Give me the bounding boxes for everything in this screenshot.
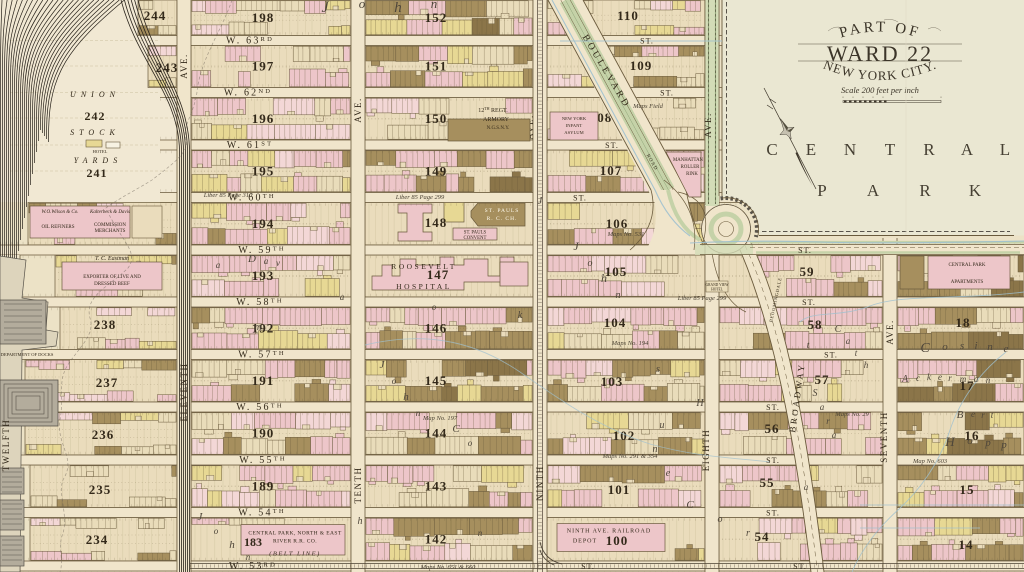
svg-text:AVE.: AVE. bbox=[179, 53, 189, 79]
svg-text:ST.: ST. bbox=[766, 509, 780, 518]
svg-text:Map No. 603: Map No. 603 bbox=[912, 458, 948, 465]
svg-text:o: o bbox=[214, 526, 219, 536]
svg-text:o: o bbox=[392, 376, 397, 386]
svg-text:CENTRAL PARK: CENTRAL PARK bbox=[949, 263, 986, 268]
svg-text:o: o bbox=[718, 514, 723, 525]
svg-text:HOSPITAL: HOSPITAL bbox=[396, 282, 452, 291]
svg-text:238: 238 bbox=[94, 317, 117, 332]
svg-text:T. C. Eastman: T. C. Eastman bbox=[95, 256, 129, 262]
svg-text:Liber 85 Page 299: Liber 85 Page 299 bbox=[395, 194, 445, 201]
svg-text:n: n bbox=[431, 0, 438, 11]
svg-text:C: C bbox=[835, 324, 842, 335]
svg-text:p: p bbox=[1000, 439, 1007, 451]
svg-text:189: 189 bbox=[252, 478, 275, 493]
svg-text:C: C bbox=[920, 341, 930, 356]
svg-text:J: J bbox=[573, 239, 579, 253]
svg-text:o: o bbox=[432, 302, 437, 312]
svg-text:ST.: ST. bbox=[573, 194, 587, 203]
svg-text:C: C bbox=[686, 499, 694, 511]
svg-text:MANHATTAN: MANHATTAN bbox=[673, 158, 704, 163]
svg-text:D: D bbox=[247, 253, 256, 265]
svg-text:12TH REGT.: 12TH REGT. bbox=[478, 106, 508, 114]
svg-text:COMMISSION: COMMISSION bbox=[94, 223, 126, 228]
svg-text:107: 107 bbox=[600, 163, 623, 178]
svg-text:198: 198 bbox=[252, 10, 275, 25]
svg-text:ELEVENTH: ELEVENTH bbox=[179, 363, 189, 422]
svg-text:W.O.Wilson & Co.: W.O.Wilson & Co. bbox=[42, 210, 79, 215]
svg-text:150: 150 bbox=[425, 111, 448, 126]
svg-text:a: a bbox=[846, 336, 851, 346]
svg-text:102: 102 bbox=[613, 428, 636, 443]
svg-text:m: m bbox=[254, 322, 261, 333]
svg-text:r: r bbox=[948, 373, 952, 383]
svg-text:H: H bbox=[944, 434, 955, 449]
svg-text:145: 145 bbox=[425, 373, 448, 388]
svg-text:109: 109 bbox=[630, 58, 653, 73]
svg-text:e: e bbox=[938, 372, 942, 382]
svg-text:147: 147 bbox=[427, 267, 450, 282]
svg-text:n: n bbox=[616, 290, 621, 301]
svg-text:Maps Field: Maps Field bbox=[632, 103, 664, 110]
svg-text:148: 148 bbox=[425, 215, 448, 230]
svg-text:194: 194 bbox=[252, 216, 275, 231]
svg-text:YARDS: YARDS bbox=[74, 156, 122, 165]
svg-text:SEVENTH: SEVENTH bbox=[879, 411, 889, 463]
svg-text:J: J bbox=[538, 196, 543, 207]
svg-text:R: R bbox=[923, 140, 935, 159]
svg-text:C: C bbox=[766, 140, 777, 159]
svg-text:a: a bbox=[820, 402, 825, 412]
svg-text:c: c bbox=[916, 373, 920, 383]
svg-text:195: 195 bbox=[252, 163, 275, 178]
svg-text:TWELFTH: TWELFTH bbox=[1, 419, 11, 472]
svg-text:n: n bbox=[246, 552, 251, 562]
svg-text:235: 235 bbox=[89, 482, 112, 497]
svg-text:DEPOT: DEPOT bbox=[573, 539, 597, 545]
svg-text:p: p bbox=[984, 437, 991, 449]
svg-text:142: 142 bbox=[425, 531, 448, 546]
svg-text:P: P bbox=[817, 181, 826, 200]
svg-text:ST.: ST. bbox=[766, 456, 780, 465]
svg-text:236: 236 bbox=[92, 427, 115, 442]
svg-text:a: a bbox=[340, 292, 345, 302]
svg-text:n: n bbox=[478, 528, 483, 538]
svg-text:h: h bbox=[358, 516, 363, 527]
svg-text:r: r bbox=[826, 416, 830, 426]
svg-text:Maps No. 651 & 660: Maps No. 651 & 660 bbox=[420, 564, 476, 571]
svg-text:143: 143 bbox=[425, 478, 448, 493]
svg-text:h: h bbox=[403, 391, 409, 403]
svg-text:EXPORTER OF LIVE AND: EXPORTER OF LIVE AND bbox=[83, 275, 141, 280]
svg-text:NEW YORK: NEW YORK bbox=[562, 116, 587, 121]
svg-text:DEPARTMENT OF DOCKS: DEPARTMENT OF DOCKS bbox=[1, 352, 54, 357]
svg-text:ROLLER: ROLLER bbox=[681, 165, 700, 170]
svg-text:100: 100 bbox=[606, 533, 629, 548]
svg-text:v: v bbox=[276, 258, 280, 268]
svg-text:i: i bbox=[974, 340, 977, 352]
svg-text:Liber 85 Page 299: Liber 85 Page 299 bbox=[677, 295, 727, 302]
svg-text:J: J bbox=[321, 0, 329, 16]
svg-text:h: h bbox=[394, 0, 402, 16]
svg-text:ST.: ST. bbox=[793, 562, 807, 571]
svg-text:57: 57 bbox=[815, 372, 830, 387]
svg-text:STOCK: STOCK bbox=[70, 128, 120, 137]
svg-text:INFANT: INFANT bbox=[566, 123, 583, 128]
svg-text:A: A bbox=[961, 140, 974, 159]
svg-text:55: 55 bbox=[760, 475, 775, 490]
svg-text:S: S bbox=[813, 388, 818, 399]
svg-text:AVE.: AVE. bbox=[353, 97, 363, 123]
svg-text:ST.: ST. bbox=[660, 89, 674, 98]
svg-text:GRAND VIEW: GRAND VIEW bbox=[706, 283, 730, 287]
svg-text:152: 152 bbox=[425, 10, 448, 25]
svg-text:ST. PAULS: ST. PAULS bbox=[464, 231, 487, 236]
svg-text:193: 193 bbox=[252, 268, 275, 283]
svg-text:K: K bbox=[969, 181, 982, 200]
svg-text:59: 59 bbox=[800, 264, 815, 279]
svg-text:n: n bbox=[987, 341, 993, 353]
svg-text:HOTEL: HOTEL bbox=[711, 288, 723, 292]
svg-text:o: o bbox=[359, 0, 366, 11]
svg-text:A: A bbox=[901, 374, 909, 385]
svg-text:56: 56 bbox=[765, 421, 780, 436]
svg-text:o: o bbox=[468, 438, 473, 448]
svg-text:s: s bbox=[960, 340, 964, 352]
svg-text:u: u bbox=[660, 420, 665, 431]
svg-text:106: 106 bbox=[606, 216, 629, 231]
svg-text:h: h bbox=[229, 539, 235, 551]
svg-text:CONVENT: CONVENT bbox=[464, 236, 487, 241]
svg-text:110: 110 bbox=[617, 8, 639, 23]
svg-text:151: 151 bbox=[425, 59, 448, 74]
svg-text:a: a bbox=[216, 260, 221, 270]
svg-text:RINK: RINK bbox=[686, 172, 698, 177]
svg-text:o: o bbox=[588, 258, 593, 269]
svg-text:HOTEL: HOTEL bbox=[93, 149, 108, 154]
svg-text:MERCHANTS: MERCHANTS bbox=[95, 229, 126, 234]
svg-text:N.G.S.N.Y.: N.G.S.N.Y. bbox=[487, 126, 510, 131]
svg-text:k: k bbox=[518, 310, 523, 321]
svg-text:196: 196 bbox=[252, 111, 275, 126]
svg-text:N: N bbox=[844, 140, 856, 159]
svg-text:241: 241 bbox=[87, 166, 108, 180]
svg-text:T: T bbox=[885, 140, 896, 159]
svg-text:a: a bbox=[974, 374, 979, 384]
svg-text:197: 197 bbox=[252, 59, 275, 74]
svg-text:L: L bbox=[1000, 140, 1010, 159]
svg-text:Liber 85 Page 310: Liber 85 Page 310 bbox=[203, 192, 253, 199]
svg-text:14: 14 bbox=[959, 537, 974, 552]
svg-text:e: e bbox=[666, 468, 671, 479]
svg-text:Map No. 197: Map No. 197 bbox=[422, 415, 458, 422]
svg-text:ST.: ST. bbox=[766, 403, 780, 412]
svg-text:o: o bbox=[942, 341, 948, 353]
svg-text:AVE.: AVE. bbox=[885, 319, 895, 345]
svg-text:190: 190 bbox=[252, 426, 275, 441]
svg-text:E: E bbox=[806, 140, 816, 159]
svg-text:APARTMENTS: APARTMENTS bbox=[951, 280, 984, 285]
svg-text:TENTH: TENTH bbox=[353, 467, 363, 504]
svg-text:Maps No. 531: Maps No. 531 bbox=[607, 231, 645, 238]
svg-text:146: 146 bbox=[425, 320, 448, 335]
svg-text:Maps No. 194: Maps No. 194 bbox=[611, 340, 649, 347]
svg-text:234: 234 bbox=[86, 532, 109, 547]
svg-text:H: H bbox=[695, 398, 704, 409]
svg-text:ST.: ST. bbox=[798, 246, 812, 255]
svg-text:e: e bbox=[971, 409, 975, 419]
svg-text:R: R bbox=[919, 181, 931, 200]
svg-text:s: s bbox=[656, 364, 660, 375]
svg-text:n: n bbox=[986, 375, 991, 385]
svg-text:e: e bbox=[1004, 343, 1009, 355]
svg-text:(BELT LINE): (BELT LINE) bbox=[269, 551, 320, 558]
svg-text:CENTRAL PARK, NORTH & EAST: CENTRAL PARK, NORTH & EAST bbox=[248, 531, 341, 537]
svg-text:B: B bbox=[957, 409, 964, 421]
svg-text:58: 58 bbox=[808, 317, 823, 332]
svg-text:15: 15 bbox=[960, 482, 975, 497]
svg-text:101: 101 bbox=[608, 482, 631, 497]
svg-text:r: r bbox=[746, 528, 750, 539]
svg-text:ST.: ST. bbox=[802, 298, 816, 307]
svg-text:a: a bbox=[264, 256, 269, 266]
svg-text:C: C bbox=[452, 423, 460, 435]
svg-text:105: 105 bbox=[605, 264, 628, 279]
svg-text:244: 244 bbox=[144, 8, 167, 23]
svg-text:54: 54 bbox=[755, 529, 770, 544]
svg-text:Scale 200 feet per inch: Scale 200 feet per inch bbox=[841, 85, 919, 95]
svg-text:h: h bbox=[864, 360, 869, 370]
svg-text:104: 104 bbox=[604, 315, 627, 330]
svg-text:144: 144 bbox=[425, 426, 448, 441]
svg-text:191: 191 bbox=[252, 373, 275, 388]
svg-text:n: n bbox=[653, 444, 658, 455]
svg-text:o: o bbox=[967, 435, 973, 447]
svg-text:WARD 22: WARD 22 bbox=[827, 41, 933, 66]
svg-text:18: 18 bbox=[956, 315, 971, 330]
svg-text:EIGHTH: EIGHTH bbox=[701, 429, 711, 472]
svg-text:n: n bbox=[416, 408, 421, 418]
svg-text:UNION: UNION bbox=[70, 90, 120, 99]
svg-text:Maps No. 291 & 354: Maps No. 291 & 354 bbox=[602, 453, 658, 460]
svg-text:242: 242 bbox=[85, 109, 106, 123]
svg-text:R. C. CH.: R. C. CH. bbox=[487, 216, 518, 222]
svg-text:a: a bbox=[832, 430, 837, 440]
svg-text:ST.: ST. bbox=[824, 351, 838, 360]
svg-text:Kalterbeck & Davis: Kalterbeck & Davis bbox=[89, 210, 130, 215]
svg-text:ARMORY: ARMORY bbox=[483, 117, 510, 123]
svg-text:149: 149 bbox=[425, 163, 448, 178]
svg-text:ST. PAULS: ST. PAULS bbox=[485, 208, 520, 214]
svg-text:OIL REFINERS: OIL REFINERS bbox=[41, 225, 74, 230]
svg-text:DRESSED BEEF: DRESSED BEEF bbox=[94, 282, 130, 287]
svg-text:237: 237 bbox=[96, 375, 119, 390]
svg-text:RIVER R.R. CO.: RIVER R.R. CO. bbox=[273, 539, 317, 545]
svg-text:ASYLUM: ASYLUM bbox=[564, 130, 583, 135]
svg-text:a: a bbox=[804, 482, 809, 492]
svg-text:Maps No. 29: Maps No. 29 bbox=[834, 411, 869, 418]
svg-text:h: h bbox=[601, 271, 607, 285]
svg-text:m: m bbox=[960, 374, 967, 384]
svg-text:r: r bbox=[981, 410, 985, 420]
svg-text:NINTH: NINTH bbox=[535, 465, 545, 501]
svg-text:ST.: ST. bbox=[605, 141, 619, 150]
svg-text:A: A bbox=[867, 181, 880, 200]
svg-text:AVE.: AVE. bbox=[703, 112, 713, 138]
svg-text:ST.: ST. bbox=[640, 37, 654, 46]
svg-text:ST.: ST. bbox=[581, 562, 595, 571]
svg-text:103: 103 bbox=[601, 374, 624, 389]
svg-text:183: 183 bbox=[244, 535, 262, 549]
